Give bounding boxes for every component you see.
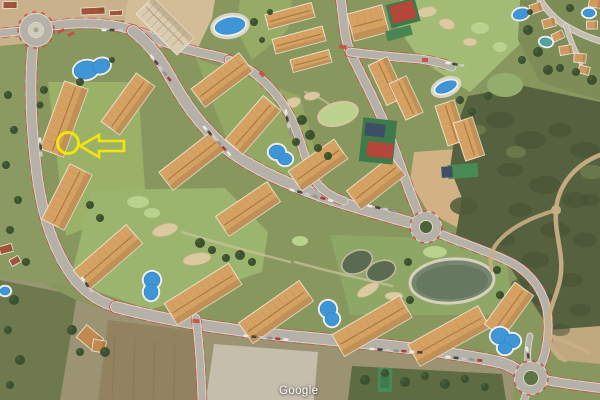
parked-car <box>469 358 474 361</box>
tree <box>4 91 12 99</box>
tree <box>208 246 216 254</box>
parked-car <box>38 137 41 142</box>
parked-car <box>117 29 122 32</box>
tree <box>518 56 526 64</box>
parked-car <box>267 337 272 340</box>
parked-car <box>101 29 106 32</box>
tree <box>6 226 14 234</box>
swimming-pool <box>70 54 115 84</box>
golf-green <box>493 42 507 52</box>
swimming-pool <box>318 299 341 328</box>
parked-car <box>461 357 466 360</box>
tree <box>360 375 370 385</box>
golf-green <box>127 196 149 208</box>
parked-car <box>409 350 414 353</box>
tree <box>195 238 205 248</box>
parked-car <box>251 335 256 338</box>
parked-car <box>259 336 264 339</box>
tree <box>2 161 10 169</box>
parked-car <box>283 338 288 341</box>
swimming-pool <box>489 326 522 356</box>
parked-car <box>401 350 406 353</box>
tennis-court <box>366 141 393 159</box>
tree <box>496 291 504 299</box>
tree <box>493 266 501 274</box>
satellite-map-view[interactable]: Google <box>0 0 600 400</box>
tree <box>100 347 110 357</box>
tree <box>37 102 44 109</box>
parked-car <box>377 348 382 351</box>
swimming-pool <box>581 7 597 19</box>
tree <box>222 254 230 262</box>
tree <box>10 126 18 134</box>
tree <box>4 326 12 334</box>
tree <box>461 375 469 383</box>
parked-car <box>445 355 450 358</box>
suburb-house <box>559 44 573 55</box>
golf-green <box>487 73 523 97</box>
red-curb-mark <box>422 58 428 62</box>
parked-car <box>369 348 374 351</box>
tree <box>248 258 256 266</box>
road-southeast-exit-road <box>546 380 600 388</box>
google-watermark: Google <box>279 385 318 397</box>
tree <box>381 369 389 377</box>
parked-car <box>243 334 248 337</box>
sand-bunker <box>463 38 477 46</box>
apartment-building <box>347 5 389 41</box>
parked-car <box>40 151 43 156</box>
sports-court <box>441 166 453 178</box>
tree <box>67 325 77 335</box>
tree <box>76 78 84 86</box>
red-curb-mark <box>67 31 75 37</box>
suburb-house <box>574 53 587 63</box>
apartment-building <box>3 2 17 9</box>
tree <box>523 25 533 35</box>
tree <box>235 250 245 260</box>
tree <box>484 92 492 100</box>
tree <box>292 138 300 146</box>
tennis-court <box>364 122 385 137</box>
parked-car <box>109 29 114 32</box>
apartment-building <box>347 156 406 209</box>
tree <box>76 348 84 356</box>
tree <box>14 196 22 204</box>
tree <box>314 144 322 152</box>
apartment-building <box>81 7 105 15</box>
tree <box>400 377 410 387</box>
tree <box>96 214 104 222</box>
tree <box>468 108 476 116</box>
parked-car <box>39 144 42 149</box>
parked-car <box>417 351 422 354</box>
apartment-building <box>109 10 122 16</box>
parked-car <box>393 349 398 352</box>
tree <box>86 201 94 209</box>
tree <box>421 372 429 380</box>
parked-car <box>453 356 458 359</box>
tree <box>556 64 564 72</box>
tree <box>587 75 597 85</box>
suburb-house <box>587 21 598 29</box>
golf-green <box>471 22 489 34</box>
tree <box>40 86 48 94</box>
tree <box>456 96 464 104</box>
golf-green <box>316 98 360 130</box>
parked-car <box>275 337 280 340</box>
parked-car <box>385 349 390 352</box>
golf-green <box>292 236 308 246</box>
tree <box>543 65 553 75</box>
tree <box>572 68 580 76</box>
tree <box>440 379 450 389</box>
golf-green <box>423 246 447 258</box>
tree <box>527 9 533 15</box>
satellite-imagery-canvas[interactable] <box>0 0 600 400</box>
tree <box>481 383 489 391</box>
tree <box>9 295 19 305</box>
tree <box>305 130 315 140</box>
tree <box>22 258 30 266</box>
golf-green <box>144 208 160 218</box>
tree <box>6 381 14 389</box>
zone-plow-field <box>98 320 198 400</box>
tree <box>267 9 273 15</box>
apartment-building <box>290 50 332 73</box>
tree <box>15 355 25 365</box>
tree <box>406 296 414 304</box>
tree <box>109 57 115 63</box>
tree <box>250 18 258 26</box>
roundabout <box>514 361 548 395</box>
parked-car <box>477 359 482 362</box>
tree <box>533 47 543 57</box>
roundabout <box>410 211 442 243</box>
tree <box>324 152 332 160</box>
tree <box>259 37 265 43</box>
red-curb-mark <box>192 319 199 324</box>
tree <box>566 4 574 12</box>
tree <box>297 115 307 125</box>
tree <box>404 258 412 266</box>
